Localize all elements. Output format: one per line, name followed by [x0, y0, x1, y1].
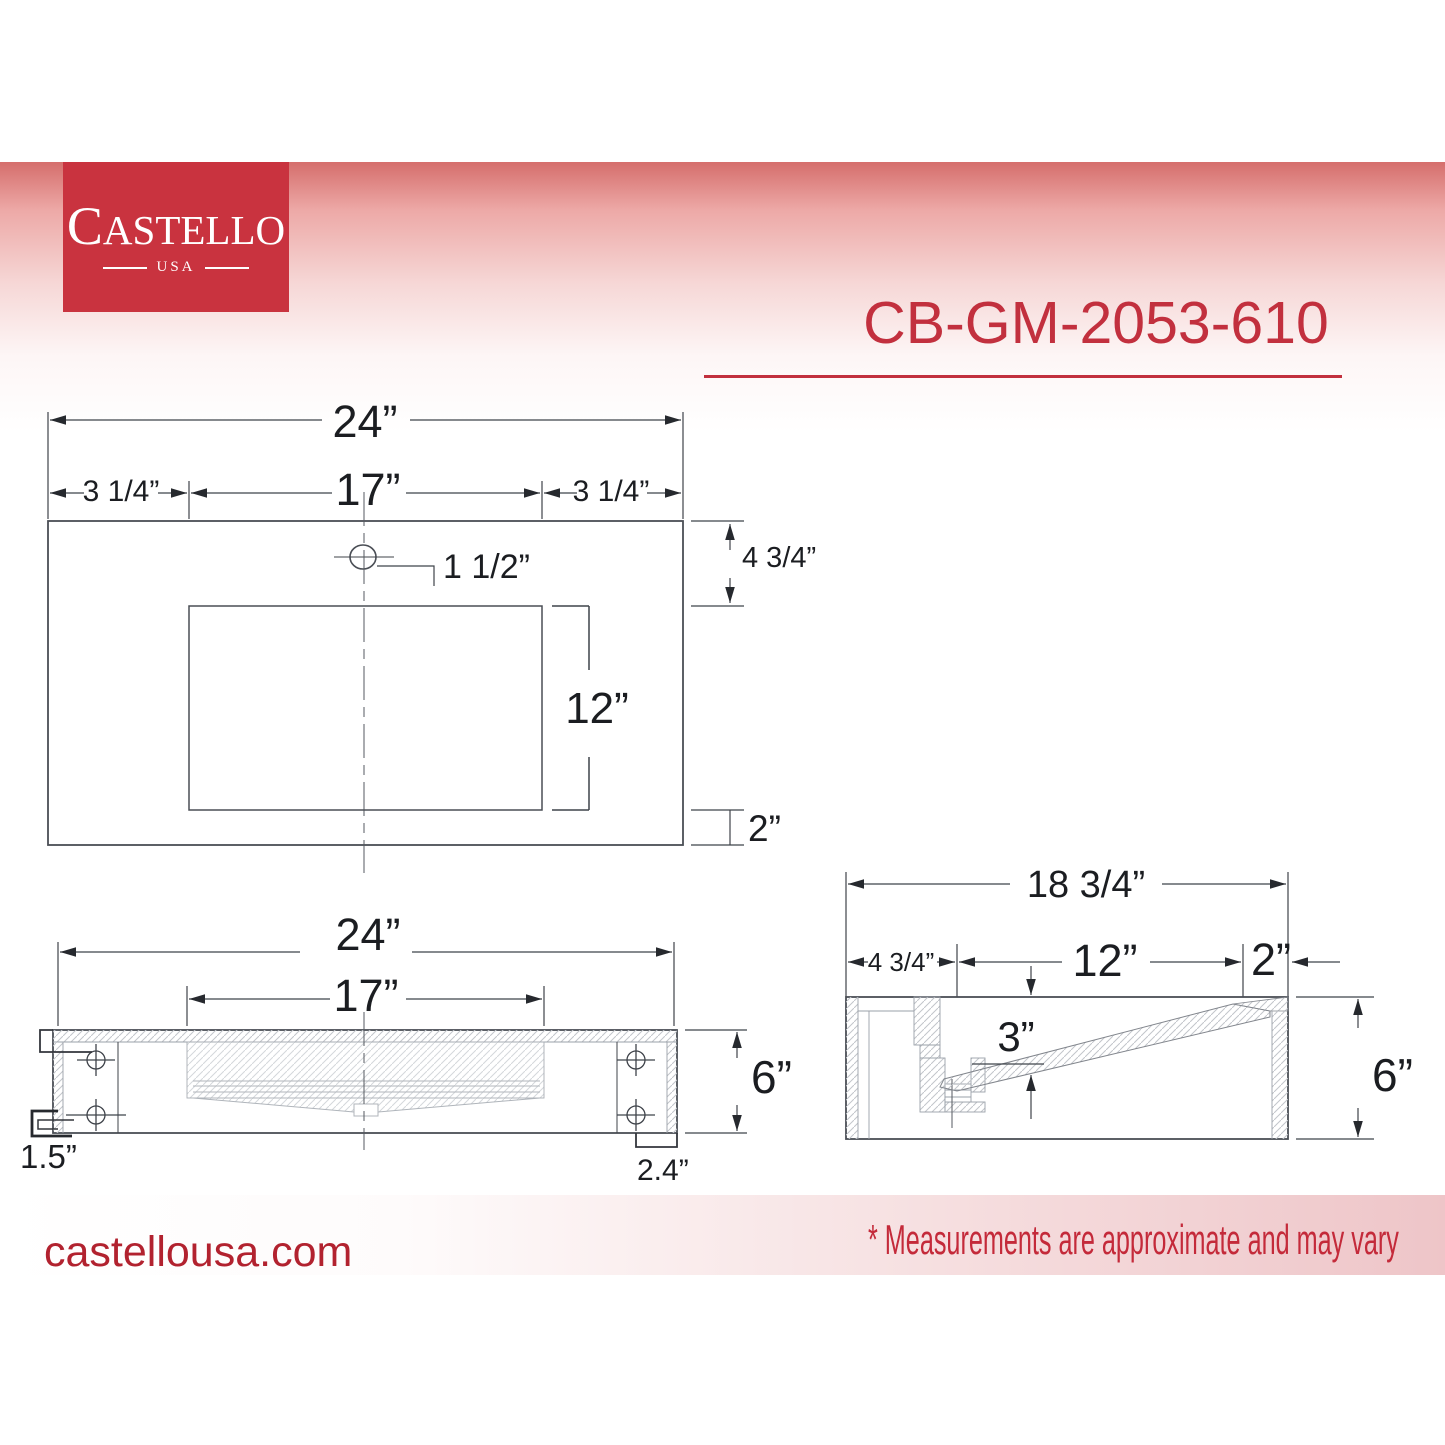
basin-depth-label: 12” [565, 684, 629, 733]
front-height-label: 6” [751, 1051, 792, 1103]
technical-drawing-sheet: 24” 3 1/4” 17” 3 1/4” 1 1/2” 12” 4 3/4” … [0, 0, 1445, 1445]
front-overall-width-label: 24” [335, 909, 400, 960]
front-setback-label: 4 3/4” [742, 542, 816, 574]
side-front-ledge-label: 4 3/4” [868, 947, 935, 977]
front-view: 24” 17” 6” 1.5” 2.4” [20, 909, 792, 1187]
front-basin-width-label: 17” [333, 970, 398, 1021]
side-view: 18 3/4” 4 3/4” 12” 2” 3” 6” [846, 864, 1413, 1139]
drain-bracket-section [914, 997, 985, 1112]
side-height-label: 6” [1372, 1049, 1413, 1101]
bracket-lip-label: 1.5” [20, 1138, 77, 1175]
side-overall-depth-label: 18 3/4” [1027, 864, 1145, 906]
faucet-hole-label: 1 1/2” [443, 548, 530, 586]
top-view: 24” 3 1/4” 17” 3 1/4” 1 1/2” 12” 4 3/4” … [48, 396, 816, 873]
side-basin-length-label: 12” [1072, 935, 1137, 986]
top-overall-width-label: 24” [332, 396, 397, 447]
back-margin-label: 2” [748, 808, 781, 849]
top-basin-width-label: 17” [335, 464, 400, 515]
side-flange-label: 2.4” [637, 1154, 689, 1187]
side-basin-depth-label: 3” [997, 1013, 1034, 1060]
top-left-offset-label: 3 1/4” [83, 475, 160, 508]
top-right-offset-label: 3 1/4” [573, 475, 650, 508]
side-back-ledge-label: 2” [1251, 934, 1291, 985]
